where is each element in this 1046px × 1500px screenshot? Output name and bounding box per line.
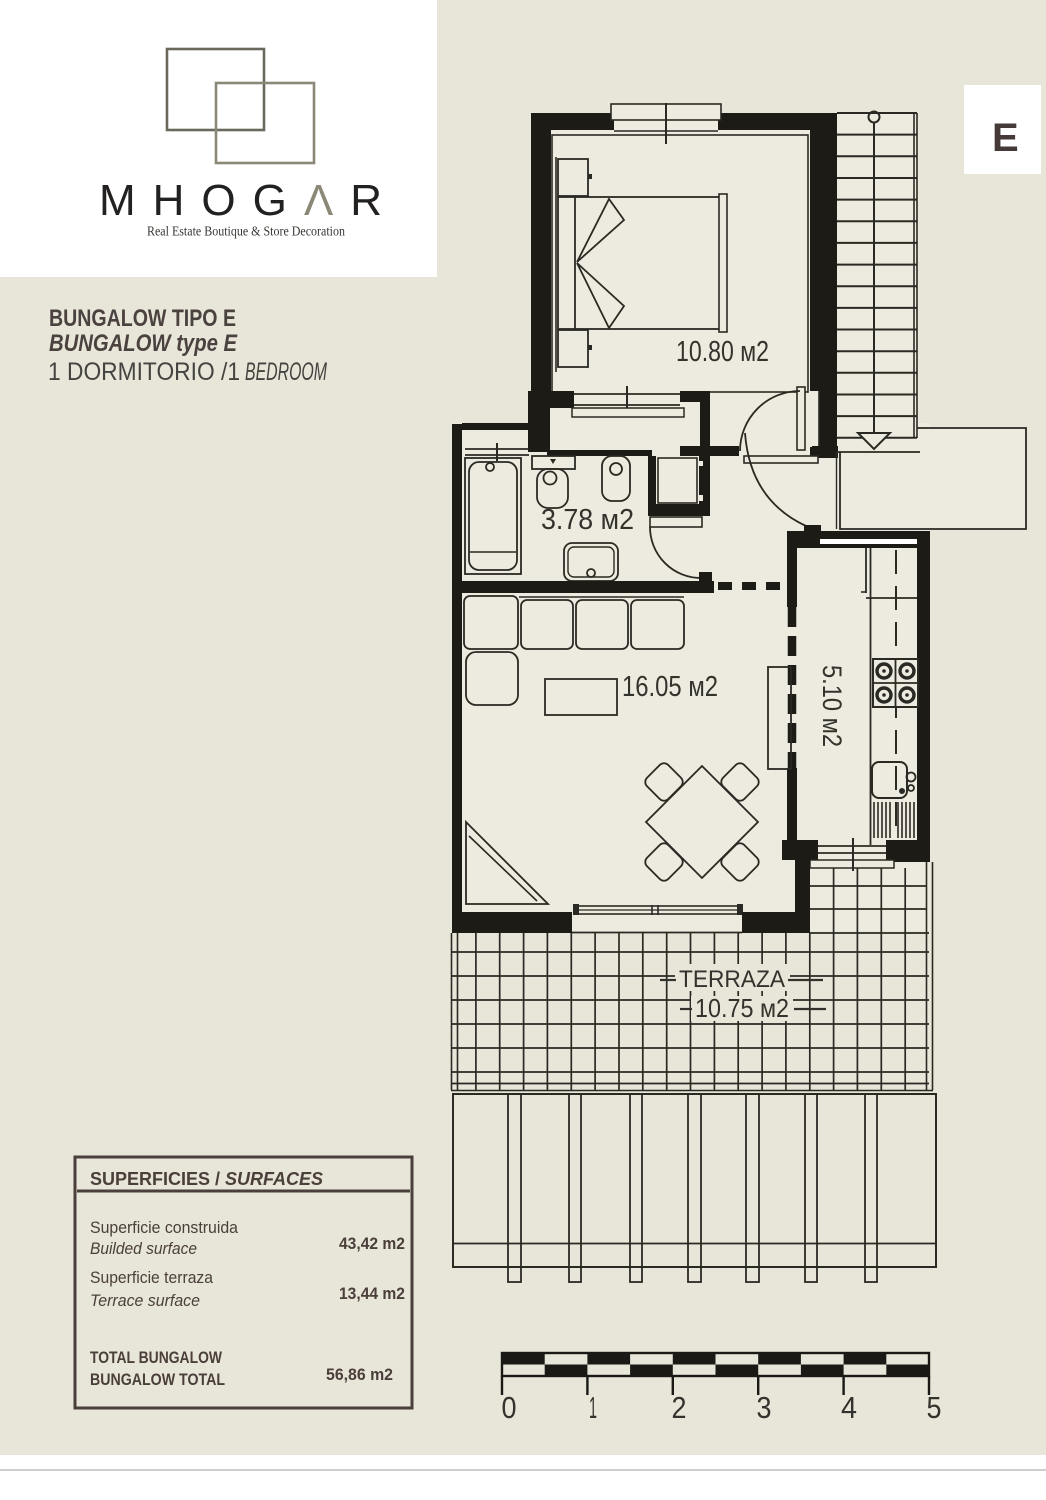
svg-text:Builded surface: Builded surface xyxy=(90,1239,197,1258)
svg-text:Terrace surface: Terrace surface xyxy=(90,1291,200,1310)
svg-text:TERRAZA: TERRAZA xyxy=(679,966,786,993)
svg-text:BUNGALOW TOTAL: BUNGALOW TOTAL xyxy=(90,1370,225,1389)
svg-text:SUPERFICIES / SURFACES: SUPERFICIES / SURFACES xyxy=(90,1169,323,1189)
svg-text:TOTAL BUNGALOW: TOTAL BUNGALOW xyxy=(90,1348,223,1367)
svg-text:BUNGALOW type E: BUNGALOW type E xyxy=(49,330,238,357)
svg-text:2: 2 xyxy=(672,1390,687,1425)
svg-text:MHOGΛR: MHOGΛR xyxy=(99,176,399,225)
svg-text:4: 4 xyxy=(841,1390,857,1425)
svg-text:0: 0 xyxy=(502,1390,517,1425)
svg-text:BUNGALOW TIPO E: BUNGALOW TIPO E xyxy=(49,305,236,332)
svg-text:Superficie construida: Superficie construida xyxy=(90,1218,238,1237)
svg-text:56,86 m2: 56,86 m2 xyxy=(326,1365,393,1384)
svg-text:5.10 м2: 5.10 м2 xyxy=(817,665,847,747)
svg-text:5: 5 xyxy=(927,1390,942,1425)
svg-text:1: 1 xyxy=(589,1390,597,1425)
svg-text:Superficie terraza: Superficie terraza xyxy=(90,1268,213,1287)
svg-text:BEDROOM: BEDROOM xyxy=(245,358,327,386)
svg-text:43,42 m2: 43,42 m2 xyxy=(339,1234,405,1253)
svg-text:10.80 м2: 10.80 м2 xyxy=(676,336,769,368)
svg-text:3.78 м2: 3.78 м2 xyxy=(541,504,634,536)
svg-text:1 DORMITORIO /1: 1 DORMITORIO /1 xyxy=(48,358,240,386)
svg-text:E: E xyxy=(992,116,1019,160)
svg-text:Real Estate Boutique & Store D: Real Estate Boutique & Store Decoration xyxy=(147,224,345,239)
svg-text:3: 3 xyxy=(757,1390,772,1425)
svg-text:16.05 м2: 16.05 м2 xyxy=(622,671,718,703)
svg-text:10.75 м2: 10.75 м2 xyxy=(695,993,789,1023)
svg-text:13,44 m2: 13,44 m2 xyxy=(339,1284,405,1303)
